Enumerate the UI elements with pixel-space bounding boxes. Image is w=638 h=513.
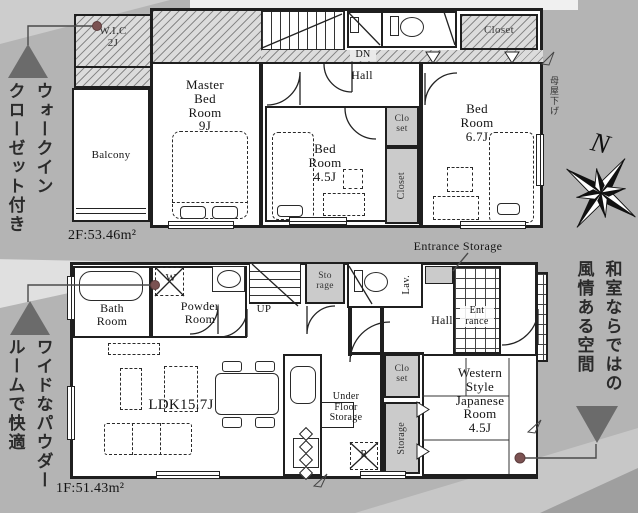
door-arc: [307, 306, 335, 334]
door-arc: [345, 108, 376, 139]
sliding-door-marker: [417, 444, 429, 459]
callout-dot: [515, 453, 525, 463]
roof-flag-marker: [314, 474, 327, 487]
closet-door-marker: [426, 52, 440, 63]
door-diagonal: [349, 13, 380, 45]
compass-north-label: N: [587, 126, 615, 160]
sliding-door-marker: [417, 402, 429, 417]
closet-door-marker: [505, 52, 519, 63]
door-arc: [219, 309, 247, 337]
door-arc: [190, 306, 218, 334]
callout-dot: [93, 22, 102, 31]
roof-flag-marker: [542, 52, 554, 65]
lineart-overlay: N: [0, 0, 638, 513]
refrigerator-cross: [350, 443, 378, 469]
door-arc: [350, 322, 390, 362]
callout-line-japanese: [521, 444, 596, 458]
callout-line-powder: [28, 285, 155, 302]
door-arc: [267, 72, 300, 105]
stairs-diagonal: [252, 264, 298, 306]
floorplan-flyer: W.I.C2J Balcony DN Closet Hall MasterBed…: [0, 0, 638, 513]
door-arc: [324, 64, 352, 92]
door-arc: [425, 73, 457, 105]
callout-dot: [151, 281, 160, 290]
door-arc: [502, 309, 538, 345]
washer-cross: [155, 267, 184, 296]
door-diagonal: [444, 12, 455, 45]
door-diagonal: [349, 266, 372, 304]
stairs-diagonal: [262, 14, 342, 48]
callout-line-wic: [28, 26, 97, 45]
tatami-lines: [422, 358, 509, 474]
callout-line-entrance-storage: [453, 253, 468, 271]
roof-flag-marker: [528, 420, 541, 433]
